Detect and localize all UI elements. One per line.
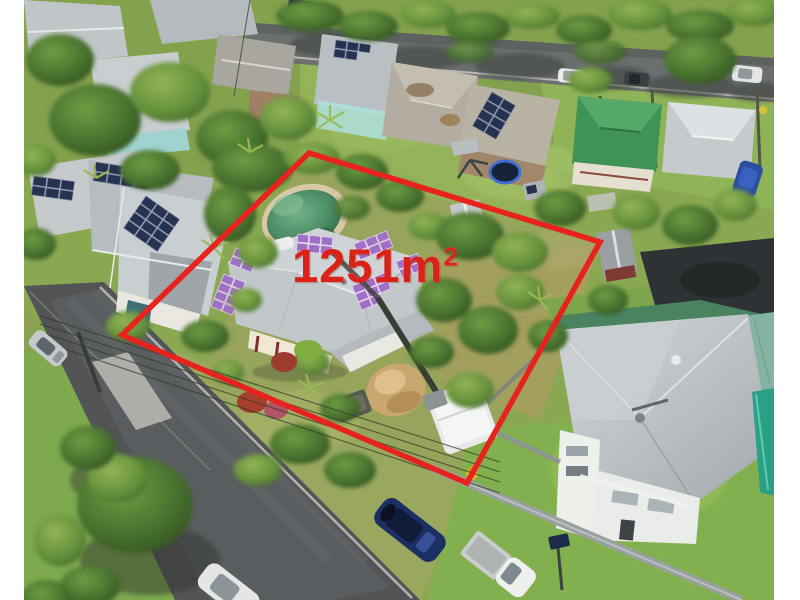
shrub [294, 340, 322, 360]
red-flowering-bush [271, 352, 297, 372]
aerial-photo [0, 0, 800, 600]
area-label: 1251m2 [292, 238, 459, 293]
green-roof-house [572, 96, 662, 192]
trampoline [490, 161, 520, 183]
parked-car-dark-suv [623, 71, 649, 88]
parked-car-silver-suv [731, 64, 763, 83]
street-marker [759, 106, 767, 114]
area-superscript: 2 [443, 241, 458, 271]
screenshot: 1251m2 [0, 0, 800, 600]
area-value: 1251m [292, 239, 443, 292]
